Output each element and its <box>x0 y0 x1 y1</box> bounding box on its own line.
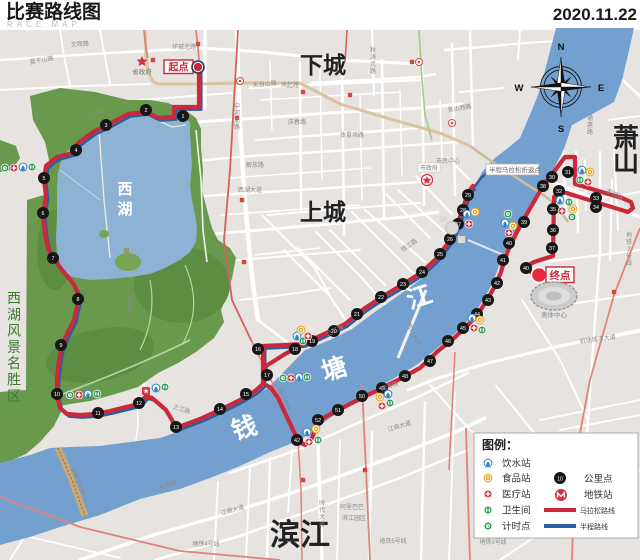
svg-text:西: 西 <box>117 181 132 198</box>
svg-text:21: 21 <box>354 312 360 318</box>
svg-text:43: 43 <box>485 298 491 304</box>
svg-text:12: 12 <box>136 401 142 407</box>
svg-text:马拉松路线: 马拉松路线 <box>580 506 615 515</box>
svg-text:线: 线 <box>626 259 632 267</box>
svg-text:40: 40 <box>523 266 529 272</box>
svg-text:半程马拉松折返点: 半程马拉松折返点 <box>489 165 542 174</box>
svg-text:景: 景 <box>7 339 21 355</box>
svg-text:8: 8 <box>77 297 80 303</box>
svg-text:30: 30 <box>549 175 555 181</box>
svg-text:庆春路: 庆春路 <box>288 118 306 126</box>
svg-text:2: 2 <box>145 108 148 114</box>
svg-text:路: 路 <box>234 123 240 131</box>
svg-text:4: 4 <box>75 148 78 154</box>
svg-text:40: 40 <box>506 241 512 247</box>
svg-text:图例：: 图例： <box>482 437 518 452</box>
svg-text:时: 时 <box>319 499 325 507</box>
svg-text:11: 11 <box>95 411 101 417</box>
svg-text:32: 32 <box>556 189 562 195</box>
svg-text:47: 47 <box>427 359 433 365</box>
svg-text:终点: 终点 <box>550 269 571 282</box>
svg-text:42: 42 <box>294 438 300 444</box>
svg-text:35: 35 <box>550 207 556 213</box>
svg-text:29: 29 <box>465 193 471 199</box>
svg-text:体育场路: 体育场路 <box>340 131 364 139</box>
svg-text:42: 42 <box>494 281 500 287</box>
svg-text:名: 名 <box>7 355 21 371</box>
svg-text:大: 大 <box>319 513 325 521</box>
svg-text:北: 北 <box>234 116 240 124</box>
svg-text:解放路: 解放路 <box>246 161 264 169</box>
svg-text:路: 路 <box>587 128 593 136</box>
svg-text:湖: 湖 <box>7 306 21 322</box>
svg-text:山: 山 <box>613 147 639 177</box>
svg-text:46: 46 <box>445 339 451 345</box>
svg-text:3: 3 <box>105 123 108 129</box>
svg-text:上城: 上城 <box>300 199 346 225</box>
svg-text:50: 50 <box>359 394 365 400</box>
svg-text:15: 15 <box>243 392 249 398</box>
svg-text:31: 31 <box>565 170 571 176</box>
svg-text:饮水站: 饮水站 <box>502 458 531 470</box>
svg-text:37: 37 <box>549 246 555 252</box>
svg-text:52: 52 <box>315 418 321 424</box>
svg-text:2020.11.22: 2020.11.22 <box>553 5 637 24</box>
svg-text:地: 地 <box>626 231 632 239</box>
svg-text:地铁站: 地铁站 <box>584 489 613 501</box>
svg-text:45: 45 <box>460 326 466 332</box>
svg-text:1: 1 <box>182 114 185 120</box>
svg-text:34: 34 <box>593 205 599 211</box>
svg-text:市民中心: 市民中心 <box>436 157 460 165</box>
svg-text:铁: 铁 <box>626 238 632 246</box>
svg-text:中: 中 <box>234 102 240 110</box>
svg-text:奥体中心: 奥体中心 <box>541 310 568 319</box>
svg-text:涛: 涛 <box>370 53 376 61</box>
svg-text:医疗站: 医疗站 <box>502 489 531 501</box>
svg-text:食品站: 食品站 <box>502 473 531 485</box>
svg-text:代: 代 <box>319 506 325 514</box>
svg-text:号: 号 <box>626 253 632 260</box>
svg-text:下城: 下城 <box>300 52 346 78</box>
svg-text:RACE MAP: RACE MAP <box>7 20 81 29</box>
svg-text:通: 通 <box>587 114 593 122</box>
svg-text:10: 10 <box>557 477 563 483</box>
svg-text:41: 41 <box>500 258 506 264</box>
svg-text:胜: 胜 <box>7 372 21 388</box>
svg-text:25: 25 <box>437 252 443 258</box>
svg-text:地铁1号线: 地铁1号线 <box>479 538 506 546</box>
svg-text:跑: 跑 <box>127 301 133 309</box>
svg-text:10: 10 <box>54 392 60 398</box>
svg-text:5: 5 <box>43 176 46 182</box>
svg-text:湖: 湖 <box>117 201 132 218</box>
svg-text:N: N <box>558 42 565 53</box>
svg-text:半程路线: 半程路线 <box>580 522 608 531</box>
svg-text:地铁4号线: 地铁4号线 <box>192 540 219 548</box>
svg-text:区: 区 <box>7 388 21 404</box>
svg-text:48: 48 <box>402 374 408 380</box>
svg-text:路: 路 <box>127 308 133 316</box>
svg-text:38: 38 <box>540 184 546 190</box>
svg-text:24: 24 <box>419 270 425 276</box>
svg-text:凤起路: 凤起路 <box>281 81 299 89</box>
svg-text:18: 18 <box>292 347 298 353</box>
svg-text:26: 26 <box>447 237 453 243</box>
svg-text:17: 17 <box>264 373 270 379</box>
svg-text:14: 14 <box>217 407 223 413</box>
svg-text:S: S <box>558 124 564 135</box>
svg-text:环城北路: 环城北路 <box>172 43 196 51</box>
svg-text:E: E <box>598 83 604 94</box>
svg-text:13: 13 <box>173 425 179 431</box>
svg-text:西湖大道: 西湖大道 <box>238 186 262 194</box>
svg-text:河: 河 <box>234 109 240 117</box>
svg-text:计时点: 计时点 <box>502 521 531 533</box>
svg-text:虎: 虎 <box>127 294 133 302</box>
svg-text:道: 道 <box>319 520 325 528</box>
svg-text:阿里巴巴: 阿里巴巴 <box>340 503 364 511</box>
svg-text:北: 北 <box>370 60 376 68</box>
svg-text:W: W <box>515 83 524 94</box>
svg-text:7: 7 <box>52 256 55 262</box>
svg-text:滨江园区: 滨江园区 <box>342 514 366 522</box>
svg-text:22: 22 <box>378 295 384 301</box>
svg-text:16: 16 <box>255 347 261 353</box>
svg-text:市政府: 市政府 <box>420 164 438 172</box>
svg-text:6: 6 <box>42 211 45 217</box>
svg-text:风: 风 <box>7 323 21 339</box>
svg-text:9: 9 <box>60 343 63 349</box>
svg-text:39: 39 <box>521 220 527 226</box>
svg-text:秋: 秋 <box>370 46 376 54</box>
svg-text:卫生间: 卫生间 <box>502 505 531 517</box>
svg-text:惠: 惠 <box>587 121 593 129</box>
svg-text:省政府: 省政府 <box>132 67 152 76</box>
svg-text:起点: 起点 <box>168 61 189 74</box>
svg-text:路: 路 <box>370 67 376 75</box>
svg-text:地铁5号线: 地铁5号线 <box>379 537 406 545</box>
svg-text:公里点: 公里点 <box>584 474 613 485</box>
svg-text:西: 西 <box>7 290 21 306</box>
svg-text:36: 36 <box>550 228 556 234</box>
svg-text:51: 51 <box>335 408 341 414</box>
